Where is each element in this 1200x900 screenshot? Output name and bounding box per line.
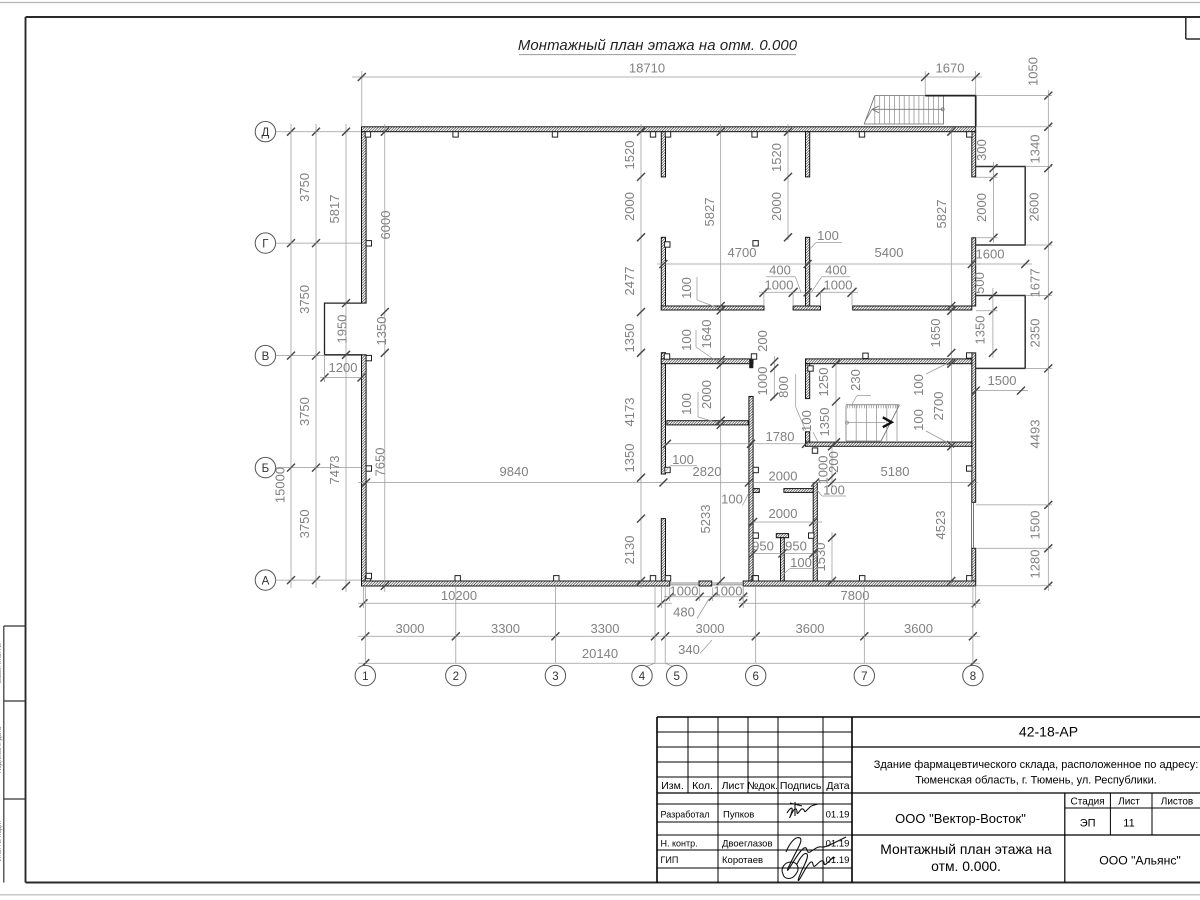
svg-text:340: 340 [678,642,700,657]
svg-text:1250: 1250 [816,368,831,397]
svg-text:Пупков: Пупков [723,810,754,821]
svg-text:1600: 1600 [976,247,1005,262]
svg-text:2000: 2000 [622,192,637,221]
svg-text:Стадия: Стадия [1071,797,1105,808]
svg-text:отм. 0.000.: отм. 0.000. [931,858,1001,874]
svg-text:Взам. инв. №: Взам. инв. № [0,643,3,683]
svg-text:9840: 9840 [500,464,529,479]
svg-text:3000: 3000 [696,621,725,636]
svg-text:01.19: 01.19 [826,839,850,850]
svg-text:5180: 5180 [881,464,910,479]
svg-text:1000: 1000 [714,584,743,599]
svg-text:4523: 4523 [933,511,948,540]
svg-text:1780: 1780 [766,429,795,444]
svg-text:5827: 5827 [702,198,717,227]
svg-text:400: 400 [825,263,847,278]
svg-text:Монтажный план этажа на отм. 0: Монтажный план этажа на отм. 0.000 [518,38,798,54]
svg-text:1520: 1520 [769,143,784,172]
svg-text:Листов: Листов [1161,797,1194,808]
svg-text:1200: 1200 [329,360,358,375]
svg-text:7650: 7650 [373,448,388,477]
svg-text:1340: 1340 [1028,135,1043,164]
svg-text:1500: 1500 [1028,511,1043,540]
svg-text:800: 800 [776,376,791,398]
svg-text:2000: 2000 [699,380,714,409]
svg-text:Подпись и дата: Подпись и дата [0,726,3,773]
svg-text:2700: 2700 [931,392,946,421]
svg-text:480: 480 [673,605,695,620]
svg-text:1520: 1520 [622,141,637,170]
svg-text:ЭП: ЭП [1080,818,1096,830]
svg-text:300: 300 [974,139,989,161]
svg-text:3300: 3300 [491,621,520,636]
svg-text:1950: 1950 [335,315,350,344]
svg-text:950: 950 [785,539,807,554]
svg-text:3750: 3750 [297,397,312,426]
svg-text:№док.: №док. [747,780,778,792]
svg-text:1350: 1350 [622,324,637,353]
svg-text:3750: 3750 [297,285,312,314]
svg-text:Дата: Дата [826,780,849,792]
svg-text:3000: 3000 [396,621,425,636]
svg-text:1280: 1280 [1028,550,1043,579]
svg-text:8: 8 [970,671,976,683]
svg-text:18710: 18710 [629,61,665,76]
svg-text:1000: 1000 [824,278,853,293]
svg-text:100: 100 [911,409,926,431]
svg-text:Г: Г [262,238,269,250]
svg-text:Тюменская область, г. Тюмень,: Тюменская область, г. Тюмень, ул. Респуб… [915,775,1157,787]
svg-text:4173: 4173 [622,398,637,427]
svg-text:5817: 5817 [327,195,342,224]
svg-text:100: 100 [672,452,694,467]
svg-text:1000: 1000 [670,584,699,599]
svg-text:100: 100 [911,374,926,396]
svg-text:100: 100 [679,393,694,415]
svg-text:1000: 1000 [755,367,770,396]
svg-text:3600: 3600 [904,621,933,636]
svg-text:2130: 2130 [622,536,637,565]
svg-text:200: 200 [755,330,770,352]
svg-text:В: В [262,351,270,363]
svg-text:1530: 1530 [813,543,828,572]
svg-text:5233: 5233 [698,505,713,534]
svg-text:Лист: Лист [722,780,745,792]
svg-text:5400: 5400 [875,245,904,260]
svg-text:1350: 1350 [973,316,988,345]
svg-text:7: 7 [861,671,867,683]
svg-text:7473: 7473 [327,456,342,485]
svg-text:Коротаев: Коротаев [722,855,763,866]
svg-text:01.19: 01.19 [826,810,850,821]
svg-text:Лист: Лист [1118,797,1140,808]
svg-text:3: 3 [552,671,558,683]
svg-text:1640: 1640 [699,320,714,349]
svg-text:Д: Д [262,127,270,139]
svg-text:6: 6 [752,671,758,683]
svg-text:Двоеглазов: Двоеглазов [722,839,773,850]
svg-text:4: 4 [639,671,646,683]
svg-text:3750: 3750 [297,173,312,202]
svg-text:7800: 7800 [841,588,870,603]
svg-text:3300: 3300 [591,621,620,636]
svg-text:2000: 2000 [769,506,798,521]
svg-text:500: 500 [972,272,987,294]
svg-text:Здание фармацевтического склад: Здание фармацевтического склада, располо… [874,759,1199,771]
svg-text:1650: 1650 [928,319,943,348]
svg-text:100: 100 [823,483,845,498]
svg-text:ООО "Вектор-Восток": ООО "Вектор-Восток" [895,811,1026,826]
svg-text:950: 950 [752,539,774,554]
svg-text:100: 100 [679,329,694,351]
svg-text:1350: 1350 [622,444,637,473]
svg-text:11: 11 [1123,818,1134,830]
svg-text:1050: 1050 [1026,57,1041,86]
svg-text:2820: 2820 [693,464,722,479]
svg-text:3750: 3750 [297,509,312,538]
svg-text:А: А [262,575,270,587]
svg-text:1677: 1677 [1028,269,1043,298]
svg-text:1000: 1000 [765,278,794,293]
svg-text:2000: 2000 [974,193,989,222]
svg-text:5: 5 [673,671,679,683]
svg-text:100: 100 [721,492,743,507]
svg-text:230: 230 [848,369,863,391]
svg-text:2000: 2000 [769,469,798,484]
svg-text:100: 100 [790,555,812,570]
svg-text:2477: 2477 [622,267,637,296]
svg-text:1350: 1350 [374,317,389,346]
svg-text:2: 2 [453,671,459,683]
svg-text:4700: 4700 [728,245,757,260]
svg-text:Н. контр.: Н. контр. [661,839,698,849]
svg-text:20140: 20140 [582,646,618,661]
svg-text:2350: 2350 [1028,319,1043,348]
svg-text:Инв. № подл.: Инв. № подл. [0,821,3,862]
svg-text:Б: Б [262,463,270,475]
svg-text:1500: 1500 [988,373,1017,388]
svg-text:6000: 6000 [378,211,393,240]
svg-text:2000: 2000 [769,192,784,221]
svg-text:400: 400 [769,263,791,278]
svg-text:ООО "Альянс": ООО "Альянс" [1099,854,1181,868]
svg-text:1670: 1670 [936,61,965,76]
svg-text:2600: 2600 [1027,193,1042,222]
svg-text:15000: 15000 [273,467,288,503]
svg-text:200: 200 [826,451,841,473]
svg-text:100: 100 [799,410,814,432]
svg-text:42-18-АР: 42-18-АР [1019,724,1078,740]
svg-text:1350: 1350 [817,408,832,437]
svg-text:Изм.: Изм. [661,780,684,792]
svg-text:1: 1 [362,671,368,683]
svg-text:Кол.: Кол. [692,780,713,792]
svg-text:Монтажный план этажа на: Монтажный план этажа на [880,841,1052,857]
svg-text:5827: 5827 [934,200,949,229]
svg-text:ГИП: ГИП [661,855,679,865]
svg-text:Разработал: Разработал [661,810,710,820]
svg-text:100: 100 [817,228,839,243]
svg-text:10200: 10200 [441,588,477,603]
svg-text:4493: 4493 [1028,420,1043,449]
svg-text:3600: 3600 [796,621,825,636]
svg-text:Подпись: Подпись [780,780,822,792]
svg-text:100: 100 [679,277,694,299]
